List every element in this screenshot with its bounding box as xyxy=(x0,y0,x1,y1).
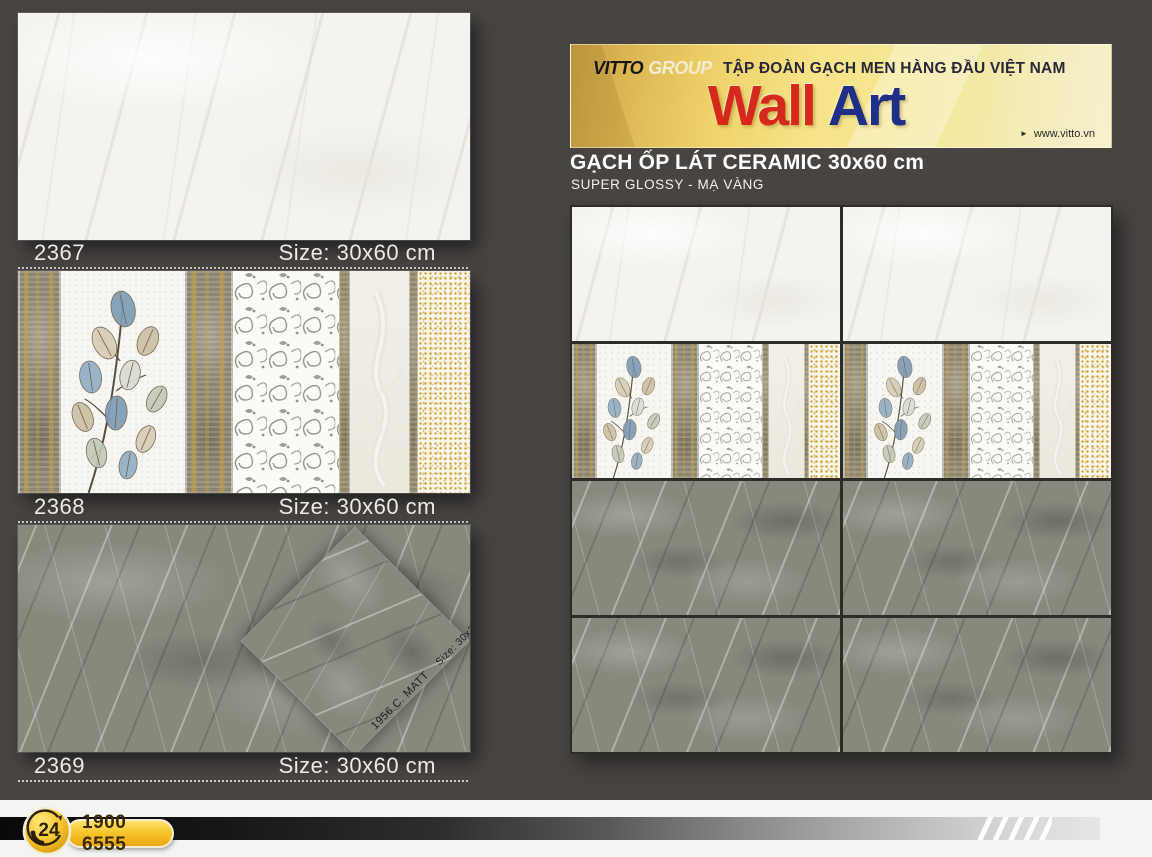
hotline-pill[interactable]: 1900 6555 xyxy=(66,819,174,848)
grid-cell-decor xyxy=(843,344,1111,478)
deco-damask-band xyxy=(1040,344,1075,478)
deco-marble-strip xyxy=(762,344,769,478)
section-subtitle: SUPER GLOSSY - MẠ VÀNG xyxy=(571,177,764,192)
vitto-group-logo: VITTOGROUP xyxy=(593,58,712,79)
leaf-branch-art xyxy=(61,271,185,493)
arrow-icon: ► xyxy=(1020,129,1028,138)
deco-vine-band xyxy=(233,271,339,493)
deco-vine-band xyxy=(699,344,762,478)
vine-scroll-art xyxy=(233,271,339,493)
product-size-label: Size: 30x60 cm xyxy=(279,753,470,779)
dotted-divider xyxy=(18,267,470,269)
deco-marble-band xyxy=(185,271,232,493)
grid-cell-stone xyxy=(572,481,840,615)
tile-sample-2368 xyxy=(18,271,470,493)
product-code-label: 2369 xyxy=(18,753,85,779)
deco-marble-band xyxy=(942,344,970,478)
product-size-label: Size: 30x60 cm xyxy=(279,494,470,520)
grid-cell-stone xyxy=(572,618,840,752)
vine-scroll-art xyxy=(699,344,762,478)
grid-cell-plain xyxy=(843,207,1111,341)
damask-flourish-art xyxy=(350,271,409,493)
deco-gold-mosaic-band xyxy=(418,271,470,493)
dotted-divider xyxy=(18,521,470,523)
product-label-row: 2368 Size: 30x60 cm xyxy=(18,495,470,519)
product-label-row: 2369 Size: 30x60 cm xyxy=(18,754,470,778)
product-size-label: Size: 30x60 cm xyxy=(279,240,470,266)
hotline-24h-badge: 24 xyxy=(22,806,72,856)
group-logo-text: GROUP xyxy=(648,58,712,78)
leaf-branch-art xyxy=(597,344,671,478)
website-url: www.vitto.vn xyxy=(1034,128,1095,140)
footer-bar-stripes xyxy=(978,817,1052,840)
wordmark-art: Art xyxy=(828,74,904,138)
hotline-number: 1900 6555 xyxy=(82,812,172,856)
deco-gold-mosaic-band xyxy=(809,344,840,478)
deco-marble-band xyxy=(843,344,868,478)
deco-vine-band xyxy=(970,344,1033,478)
deco-marble-band xyxy=(671,344,699,478)
deco-damask-band xyxy=(350,271,409,493)
deco-marble-strip xyxy=(409,271,418,493)
grid-cell-stone xyxy=(843,618,1111,752)
wordmark-wall: Wall xyxy=(708,74,815,138)
deco-leaf-band xyxy=(61,271,185,493)
deco-damask-band xyxy=(769,344,804,478)
grid-cell-decor xyxy=(572,344,840,478)
leaf-branch-art xyxy=(868,344,942,478)
diamond-overlay-tile xyxy=(242,528,468,752)
brand-banner: VITTOGROUP TẬP ĐOÀN GẠCH MEN HÀNG ĐẦU VI… xyxy=(570,44,1112,148)
product-label-row: 2367 Size: 30x60 cm xyxy=(18,241,470,265)
deco-leaf-band xyxy=(868,344,942,478)
badge-24-label: 24 xyxy=(22,806,72,856)
deco-marble-band xyxy=(18,271,61,493)
vine-scroll-art xyxy=(970,344,1033,478)
damask-flourish-art xyxy=(1040,344,1075,478)
deco-marble-band xyxy=(572,344,597,478)
tile-sample-2369: 1956 C. MATTSize: 30x30 cm xyxy=(18,525,470,752)
catalog-page: 2367 Size: 30x60 cm xyxy=(0,0,1152,857)
tile-sample-2367 xyxy=(18,13,470,240)
product-code-label: 2367 xyxy=(18,240,85,266)
section-title: GẠCH ỐP LÁT CERAMIC 30x60 cm xyxy=(570,151,924,175)
wallart-wordmark: WallArt xyxy=(571,78,1111,135)
deco-leaf-band xyxy=(597,344,671,478)
dotted-divider xyxy=(18,780,470,782)
website-link[interactable]: ►www.vitto.vn xyxy=(1020,128,1095,140)
grid-cell-plain xyxy=(572,207,840,341)
deco-marble-strip xyxy=(339,271,350,493)
deco-marble-strip xyxy=(1033,344,1040,478)
deco-gold-mosaic-band xyxy=(1080,344,1111,478)
tile-wall-grid xyxy=(570,205,1113,754)
product-code-label: 2368 xyxy=(18,494,85,520)
damask-flourish-art xyxy=(769,344,804,478)
grid-cell-stone xyxy=(843,481,1111,615)
vitto-logo-text: VITTO xyxy=(593,58,643,78)
